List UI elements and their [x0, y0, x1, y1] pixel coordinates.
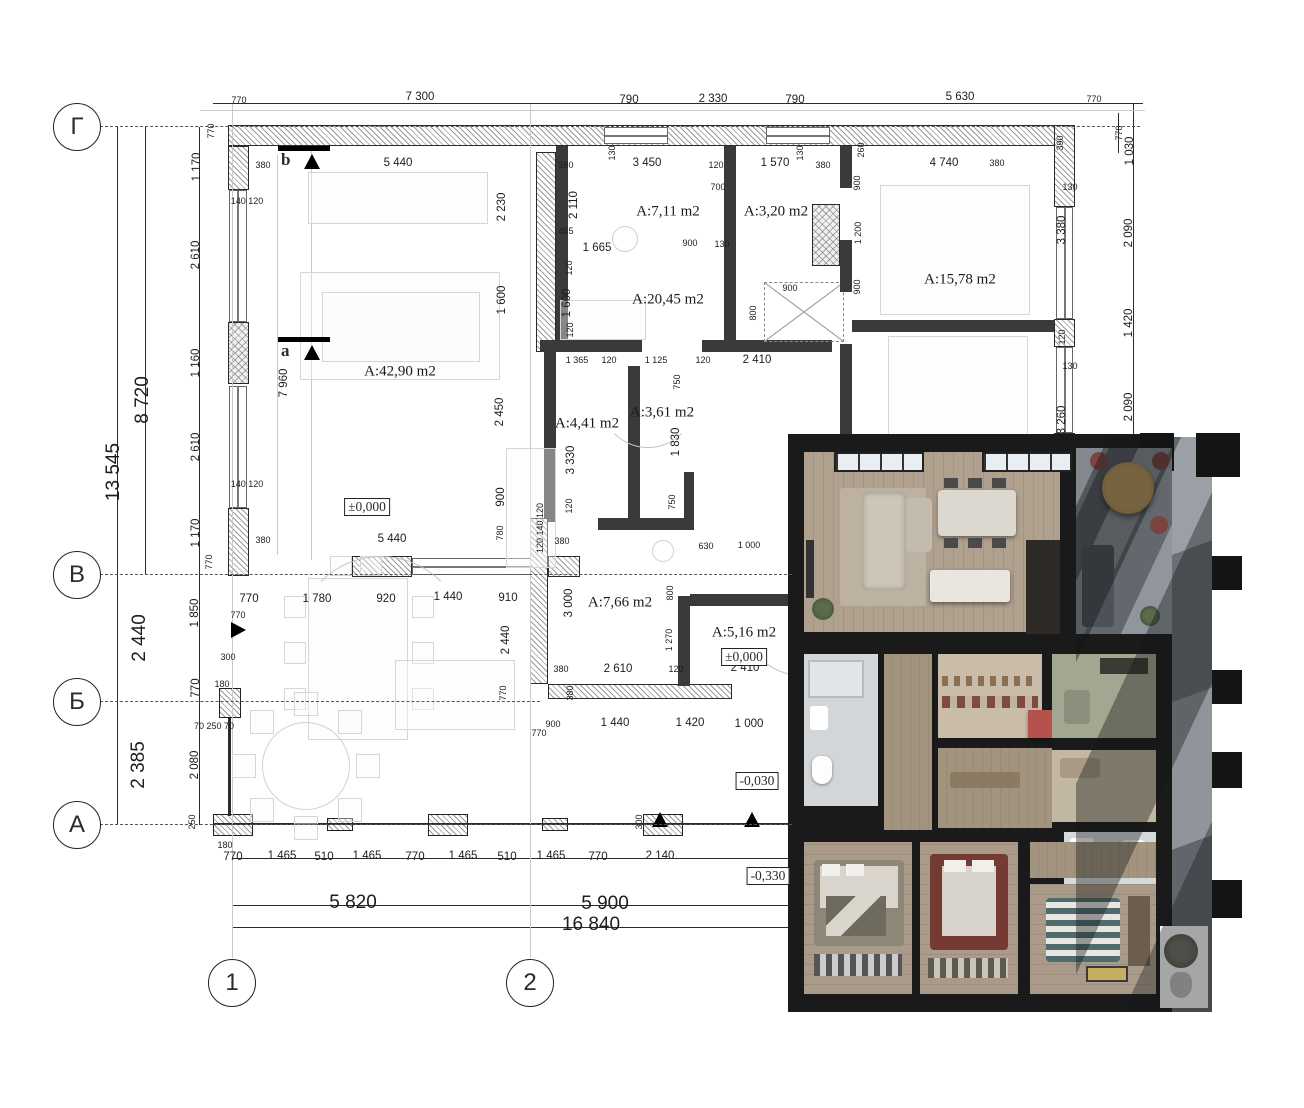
dimension-label: 2 610	[190, 241, 202, 270]
room-area-label: A:42,90 m2	[364, 364, 436, 381]
dimension-label: 700	[710, 182, 725, 192]
dimension-label: 800	[665, 585, 675, 600]
dimension-label: 4 740	[930, 157, 959, 169]
section-mark-arrow	[304, 345, 320, 360]
room-area-label: A:7,11 m2	[636, 204, 700, 221]
dimension-label: 800	[748, 305, 758, 320]
level-mark: ±0,000	[721, 648, 767, 666]
grid-axis-col: 2	[506, 959, 554, 1007]
dimension-label: 130	[714, 239, 729, 249]
grid-axis-label: Б	[69, 688, 85, 716]
dimension-label: 120	[695, 355, 710, 365]
grid-axis-row: Г	[53, 103, 101, 151]
dimension-label: 3 260	[1056, 406, 1068, 435]
dimension-label: 2 090	[1123, 219, 1135, 248]
dimension-label: 380	[255, 160, 270, 170]
grid-axis-row: Б	[53, 678, 101, 726]
dimension-label: 380	[815, 160, 830, 170]
dimension-label: 900	[682, 238, 697, 248]
section-mark-letter: a	[281, 341, 290, 361]
dimension-label: 5 900	[581, 893, 629, 915]
dimension-label: 140 120	[231, 196, 264, 206]
level-mark: ±0,000	[344, 498, 390, 516]
dimension-label: 130	[795, 145, 805, 160]
dimension-label: 5 440	[384, 157, 413, 169]
dimension-label: 120	[564, 260, 574, 275]
dimension-label: 770	[230, 610, 245, 620]
room-area-label: A:20,45 m2	[632, 292, 704, 309]
dimension-label: 1 665	[583, 242, 612, 254]
dimension-label: 770	[206, 123, 216, 138]
dimension-label: 2 410	[743, 354, 772, 366]
annotation-layer: ГВБА127707 3007902 3307905 6307703805 44…	[0, 0, 1304, 1108]
dimension-label: 465	[558, 226, 573, 236]
dimension-label: 380	[554, 536, 569, 546]
room-area-label: A:7,66 m2	[588, 595, 652, 612]
dimension-label: 750	[672, 374, 682, 389]
section-mark-letter: b	[281, 150, 290, 170]
dimension-label: 900	[545, 719, 560, 729]
dimension-label: 770	[588, 851, 607, 863]
dimension-label: 2 385	[128, 741, 150, 789]
grid-axis-line	[100, 701, 540, 702]
dimension-label: 1 270	[664, 629, 674, 652]
dimension-label: 2 610	[604, 663, 633, 675]
dimension-label: 250	[187, 814, 197, 829]
dimension-label: 750	[667, 494, 677, 509]
dimension-label: 510	[314, 851, 333, 863]
room-area-label: A:15,78 m2	[924, 272, 996, 289]
dimension-label: 380	[255, 535, 270, 545]
dimension-label: 16 840	[562, 914, 620, 936]
dimension-label: 1 170	[190, 519, 202, 548]
room-area-label: A:4,41 m2	[555, 416, 619, 433]
dimension-label: 2 440	[129, 614, 151, 662]
dimension-label: 7 300	[406, 91, 435, 103]
dimension-label: 180	[217, 840, 232, 850]
dimension-label: 2 230	[496, 193, 508, 222]
dimension-label: 770	[190, 678, 202, 697]
dimension-label: 2 450	[494, 398, 506, 427]
dimension-label: 120	[601, 355, 616, 365]
grid-axis-row: А	[53, 801, 101, 849]
dimension-label: 900	[495, 487, 507, 506]
dimension-label: 770	[1086, 94, 1101, 104]
dimension-label: 900	[852, 175, 862, 190]
dimension-label: 120	[1057, 329, 1067, 344]
dimension-label: 1 600	[496, 286, 508, 315]
dimension-label: 1 420	[676, 717, 705, 729]
dimension-label: 1 570	[761, 157, 790, 169]
dimension-label: 2 140	[646, 850, 675, 862]
dimension-label: 770	[223, 851, 242, 863]
dimension-label: 120	[708, 160, 723, 170]
dimension-label: 1 170	[191, 153, 203, 182]
dimension-label: 5 630	[946, 91, 975, 103]
dimension-label: 70 250 70	[194, 721, 234, 731]
dimension-label: 1 850	[189, 599, 201, 628]
grid-axis-line	[100, 824, 792, 825]
dimension-label: 1 000	[738, 540, 761, 550]
dimension-label: 1 000	[735, 718, 764, 730]
dimension-label: 1 420	[1123, 309, 1135, 338]
dimension-label: 390	[1055, 135, 1065, 150]
dimension-label: 8 720	[132, 376, 154, 424]
dimension-label: 1 030	[1124, 137, 1136, 166]
dimension-label: 5 440	[378, 533, 407, 545]
level-mark: -0,330	[747, 867, 790, 885]
dimension-label: 900	[852, 279, 862, 294]
dimension-label: 3 330	[565, 446, 577, 475]
grid-axis-label: 2	[523, 969, 536, 997]
dimension-label: 770	[239, 593, 258, 605]
grid-axis-label: 1	[225, 969, 238, 997]
dimension-label: 120	[668, 664, 683, 674]
grid-axis-col: 1	[208, 959, 256, 1007]
dimension-label: 130	[1062, 182, 1077, 192]
dimension-label: 5 820	[329, 892, 377, 914]
dimension-label: 1 365	[566, 355, 589, 365]
dimension-label: 300	[220, 652, 235, 662]
dimension-label: 790	[785, 94, 804, 106]
dimension-label: 3 450	[633, 157, 662, 169]
dimension-label: 770	[231, 95, 246, 105]
dimension-label: 1 160	[190, 349, 202, 378]
dimension-label: 140 120	[231, 479, 264, 489]
dimension-label: 13 545	[103, 443, 125, 501]
dimension-label: 380	[558, 160, 573, 170]
dimension-label: 1 125	[645, 355, 668, 365]
dimension-label: 2 110	[568, 191, 580, 219]
dimension-label: 510	[497, 851, 516, 863]
dimension-label: 130	[607, 145, 617, 160]
dimension-label: 3 000	[563, 589, 575, 618]
dimension-label: 1 600	[561, 289, 573, 318]
dimension-label: 1 440	[434, 591, 463, 603]
dimension-label: 380	[565, 685, 575, 700]
dimension-label: 130	[1062, 361, 1077, 371]
dimension-label: 770	[498, 685, 508, 700]
dimension-label: 770	[531, 728, 546, 738]
section-mark-arrow	[304, 154, 320, 169]
dimension-label: 1 465	[537, 850, 566, 862]
level-mark: -0,030	[736, 772, 779, 790]
dimension-label: 380	[989, 158, 1004, 168]
dimension-label: 900	[782, 283, 797, 293]
dimension-label: 770	[204, 554, 214, 569]
grid-axis-line	[100, 574, 792, 575]
dimension-label: 3 380	[1056, 216, 1068, 245]
dimension-label: 1 830	[670, 428, 682, 457]
grid-axis-label: В	[69, 561, 85, 589]
dimension-label: 120	[565, 322, 575, 337]
grid-axis-label: А	[69, 811, 85, 839]
dimension-label: 2 090	[1123, 393, 1135, 422]
dimension-label: 1 465	[353, 850, 382, 862]
dimension-label: 260	[856, 142, 866, 157]
dimension-label: 180	[214, 679, 229, 689]
room-area-label: A:5,16 m2	[712, 625, 776, 642]
dimension-label: 630	[698, 541, 713, 551]
grid-axis-row: В	[53, 551, 101, 599]
dimension-label: 7 960	[278, 369, 290, 398]
dimension-label: 920	[376, 593, 395, 605]
dimension-label: 1 440	[601, 717, 630, 729]
dimension-label: 2 080	[189, 751, 201, 780]
dimension-label: 770	[405, 851, 424, 863]
dimension-label: 2 610	[190, 433, 202, 462]
dimension-label: 790	[619, 94, 638, 106]
dimension-label: 1 465	[449, 850, 478, 862]
grid-axis-label: Г	[71, 113, 84, 141]
dimension-label: 2 440	[500, 626, 512, 655]
dimension-label: 770	[1114, 125, 1124, 140]
dimension-label: 380	[553, 664, 568, 674]
dimension-label: 1 465	[268, 850, 297, 862]
room-area-label: A:3,20 m2	[744, 204, 808, 221]
room-area-label: A:3,61 m2	[630, 405, 694, 422]
dimension-label: 1 200	[853, 222, 863, 245]
dimension-label: 2 330	[699, 93, 728, 105]
grid-axis-line	[100, 126, 1140, 127]
dimension-label: 910	[498, 592, 517, 604]
dimension-label: 300	[634, 814, 644, 829]
floor-plan: ГВБА127707 3007902 3307905 6307703805 44…	[0, 0, 1304, 1108]
dimension-label: 1 780	[303, 593, 332, 605]
dimension-label: 780	[495, 525, 505, 540]
dimension-label: 120 140 120	[535, 503, 545, 553]
dimension-label: 120	[564, 498, 574, 513]
